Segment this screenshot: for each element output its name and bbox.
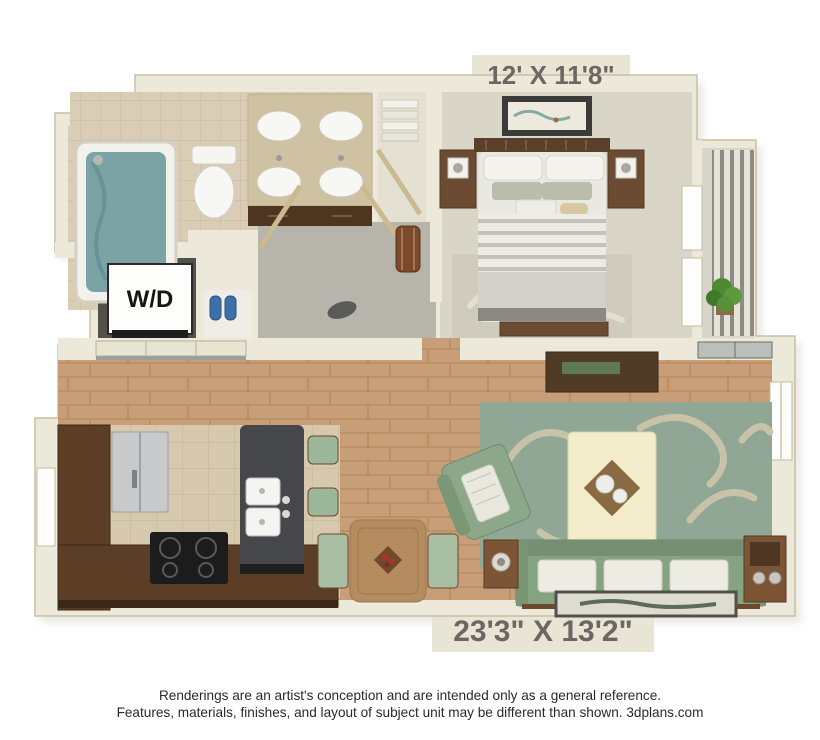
faucet-icon: [282, 496, 290, 504]
fridge-handle: [132, 470, 137, 488]
hallway-luggage: [396, 226, 420, 272]
toilet: [192, 146, 236, 218]
refrigerator: [112, 432, 168, 512]
washer-dryer-label: W/D: [127, 286, 174, 313]
lamp-icon: [453, 163, 463, 173]
floorplan-rendering: 12' X 11'8" 23'3" X 13'2" W/D: [0, 0, 820, 740]
disclaimer-line-1: Renderings are an artist's conception an…: [0, 688, 820, 705]
double-vanity: [248, 94, 372, 226]
ottoman-coffee-table: [568, 432, 656, 544]
bedroom-dimension-label: 12' X 11'8": [487, 60, 614, 90]
kitchen-left-window: [37, 468, 55, 546]
side-table-right: [744, 536, 786, 602]
lamp-icon: [621, 163, 631, 173]
side-table-left: [484, 540, 518, 588]
console-table: [546, 352, 658, 392]
bed: [474, 138, 610, 322]
faucet-icon: [338, 155, 344, 161]
wall-art: [502, 96, 592, 136]
shower-head-icon: [93, 155, 103, 165]
living-dimension-label: 23'3" X 13'2": [453, 615, 633, 648]
nightstand-right: [608, 150, 644, 208]
kitchen-island: [240, 425, 304, 574]
faucet-icon: [276, 155, 282, 161]
leaning-artwork: [556, 592, 736, 616]
dining-table: [350, 520, 426, 602]
balcony-sliding-door: [698, 342, 772, 358]
foot-bench: [500, 322, 608, 336]
disclaimer: Renderings are an artist's conception an…: [0, 688, 820, 721]
living-room-top-windows: [96, 341, 246, 360]
floorplan-page: 12' X 11'8" 23'3" X 13'2" W/D Renderings…: [0, 0, 820, 740]
nightstand-left: [440, 150, 476, 208]
faucet-icon: [282, 510, 290, 518]
lamp-icon: [497, 558, 505, 566]
stove: [150, 532, 228, 584]
disclaimer-line-2: Features, materials, finishes, and layou…: [0, 705, 820, 722]
entry-corridor-floor: [422, 338, 460, 362]
